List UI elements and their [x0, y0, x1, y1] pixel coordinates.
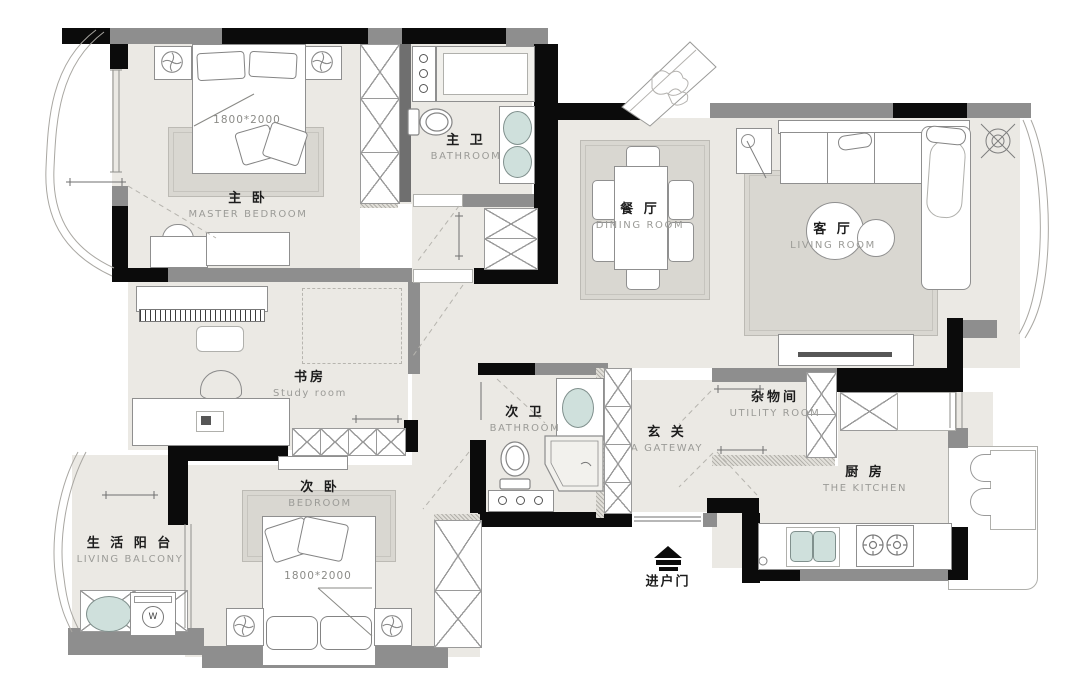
low-cabinet: [376, 428, 406, 456]
kitchen-chair: [970, 454, 991, 482]
wall-segment: [947, 318, 963, 392]
wall-segment: [186, 444, 288, 461]
room-name-en: Study room: [273, 387, 347, 400]
entry-arrow-bar: [659, 567, 678, 571]
kitchen-cabinet: [897, 392, 956, 431]
entry-arrow-icon: [654, 546, 682, 558]
headboard-shelf: [278, 456, 348, 470]
fan-icon: [379, 613, 405, 639]
shoe-cabinet: [604, 406, 632, 446]
room-name-en: LIVING BALCONY: [77, 553, 184, 566]
kitchen-table: [990, 450, 1036, 530]
wall-segment: [462, 194, 535, 207]
control-knob: [534, 496, 543, 505]
wardrobe: [434, 590, 482, 648]
pillow: [196, 51, 245, 81]
room-label-second-bedroom: 次 卧 BEDROOM: [288, 480, 351, 510]
control-knob: [419, 69, 428, 78]
room-name-zh: 次 卫: [490, 405, 561, 422]
wall-segment: [893, 103, 967, 118]
room-label-living: 客 厅 LIVING ROOM: [790, 222, 876, 252]
kitchen-chair: [970, 488, 991, 516]
entry-door-text: 进户门: [645, 575, 690, 592]
wall-segment: [963, 320, 997, 338]
wardrobe: [434, 520, 482, 592]
wall-segment: [707, 498, 759, 513]
laptop-screen: [201, 416, 211, 425]
wall-segment: [368, 28, 402, 44]
dresser: [206, 232, 290, 266]
tv: [798, 352, 892, 357]
ceiling-fan-icon: [975, 118, 1021, 164]
low-cabinet: [348, 428, 378, 456]
shower-inner: [443, 53, 528, 95]
room-label-second-bath: 次 卫 BATHROOM: [490, 405, 561, 435]
room-label-gateway: 玄 关 A GATEWAY: [631, 425, 703, 455]
room-label-dining: 餐 厅 DINING ROOM: [596, 202, 684, 232]
floor-lamp: [741, 134, 755, 148]
vanity-table: [150, 236, 208, 268]
tv-cabinet: [778, 334, 914, 366]
fan-icon: [309, 49, 335, 75]
shoe-cabinet: [604, 368, 632, 408]
room-label-utility: 杂物间 UTILITY ROOM: [730, 390, 821, 420]
wardrobe: [360, 152, 400, 204]
stove-burners-icon: [858, 528, 910, 562]
wall-segment: [948, 428, 968, 448]
side-table: [736, 128, 772, 174]
wall-segment: [408, 282, 420, 374]
wall-segment: [478, 512, 632, 527]
control-knob: [516, 496, 525, 505]
sink: [503, 111, 532, 145]
wall-segment: [110, 28, 222, 44]
wall-segment: [837, 368, 963, 392]
wall-segment: [110, 44, 128, 69]
wall-segment: [474, 268, 558, 284]
sofa-seat: [874, 132, 923, 184]
entry-arrow-bar: [656, 560, 681, 565]
entry-door-label: 进户门: [645, 575, 690, 592]
control-knob: [419, 84, 428, 93]
wall-segment: [222, 28, 368, 44]
room-name-en: BATHROOM: [490, 422, 561, 435]
wall-segment: [710, 103, 893, 118]
wall-segment: [62, 28, 110, 44]
bed-size-label: 1800*2000: [284, 570, 352, 582]
floor-plan: W: [0, 0, 1080, 686]
room-name-zh: 餐 厅: [596, 202, 684, 219]
door-leaf: [413, 194, 463, 207]
room-name-en: UTILITY ROOM: [730, 407, 821, 420]
wall-segment: [404, 420, 418, 452]
room-label-kitchen: 厨 房 THE KITCHEN: [823, 465, 907, 495]
low-cabinet: [292, 428, 322, 456]
pillow: [266, 616, 318, 650]
wall-segment: [545, 103, 640, 120]
kitchen-cabinet: [840, 392, 899, 431]
room-label-study: 书房 Study room: [273, 370, 347, 400]
toilet-icon: [496, 440, 534, 494]
room-name-en: MASTER BEDROOM: [189, 208, 308, 221]
chaise-cushion: [925, 139, 966, 219]
room-name-zh: 次 卧: [288, 480, 351, 497]
room-name-en: LIVING ROOM: [790, 239, 876, 252]
room-name-zh: 主 卧: [189, 191, 308, 208]
door-leaf: [413, 269, 473, 283]
room-name-en: THE KITCHEN: [823, 482, 907, 495]
wall-segment: [470, 440, 486, 513]
sink: [562, 388, 594, 428]
room-name-zh: 生 活 阳 台: [77, 536, 184, 553]
furniture-projection: [302, 288, 402, 364]
control-knob: [498, 496, 507, 505]
room-name-zh: 玄 关: [631, 425, 703, 442]
room-name-en: BEDROOM: [288, 497, 351, 510]
wall-segment: [168, 268, 412, 282]
bed-size-label: 1800*2000: [213, 114, 281, 126]
washer-panel: [134, 596, 172, 603]
shower-controls: [412, 46, 436, 102]
room-name-en: DINING ROOM: [596, 219, 684, 232]
room-name-en: A GATEWAY: [631, 442, 703, 455]
room-name-zh: 书房: [273, 370, 347, 387]
room-name-zh: 厨 房: [823, 465, 907, 482]
shoe-cabinet: [604, 444, 632, 484]
room-name-zh: 主 卫: [431, 133, 502, 150]
hall-closet: [484, 208, 538, 240]
piano-keys: [139, 309, 265, 322]
shower-icon: [541, 434, 605, 494]
room-name-zh: 杂物间: [730, 390, 821, 407]
room-label-balcony: 生 活 阳 台 LIVING BALCONY: [77, 536, 184, 566]
wall-segment: [112, 186, 128, 206]
balcony-sink: [86, 596, 132, 632]
wall-segment: [478, 363, 535, 375]
hall-closet: [484, 238, 538, 270]
washer-door: W: [142, 606, 164, 628]
piano-bench: [196, 326, 244, 352]
utility-cabinet: [806, 414, 837, 458]
wall-segment: [703, 513, 717, 527]
pillow: [320, 616, 372, 650]
washing-machine: W: [130, 592, 176, 636]
room-name-en: BATHROOM: [431, 150, 502, 163]
fan-icon: [231, 613, 257, 639]
wardrobe: [360, 44, 400, 100]
room-label-master-bath: 主 卫 BATHROOM: [431, 133, 502, 163]
room-name-zh: 客 厅: [790, 222, 876, 239]
pillow: [248, 51, 297, 79]
wall-segment: [967, 103, 1031, 118]
wardrobe: [360, 98, 400, 154]
sofa-seat: [780, 132, 829, 184]
sink-basin: [790, 531, 813, 562]
sink-basin: [813, 531, 836, 562]
wall-segment: [168, 443, 188, 525]
low-cabinet: [320, 428, 350, 456]
room-label-master-bedroom: 主 卧 MASTER BEDROOM: [189, 191, 308, 221]
wall-segment: [402, 28, 506, 44]
wall-segment: [112, 268, 168, 282]
sink: [503, 146, 532, 178]
shoe-cabinet: [604, 482, 632, 514]
control-knob: [419, 54, 428, 63]
fan-icon: [159, 49, 185, 75]
